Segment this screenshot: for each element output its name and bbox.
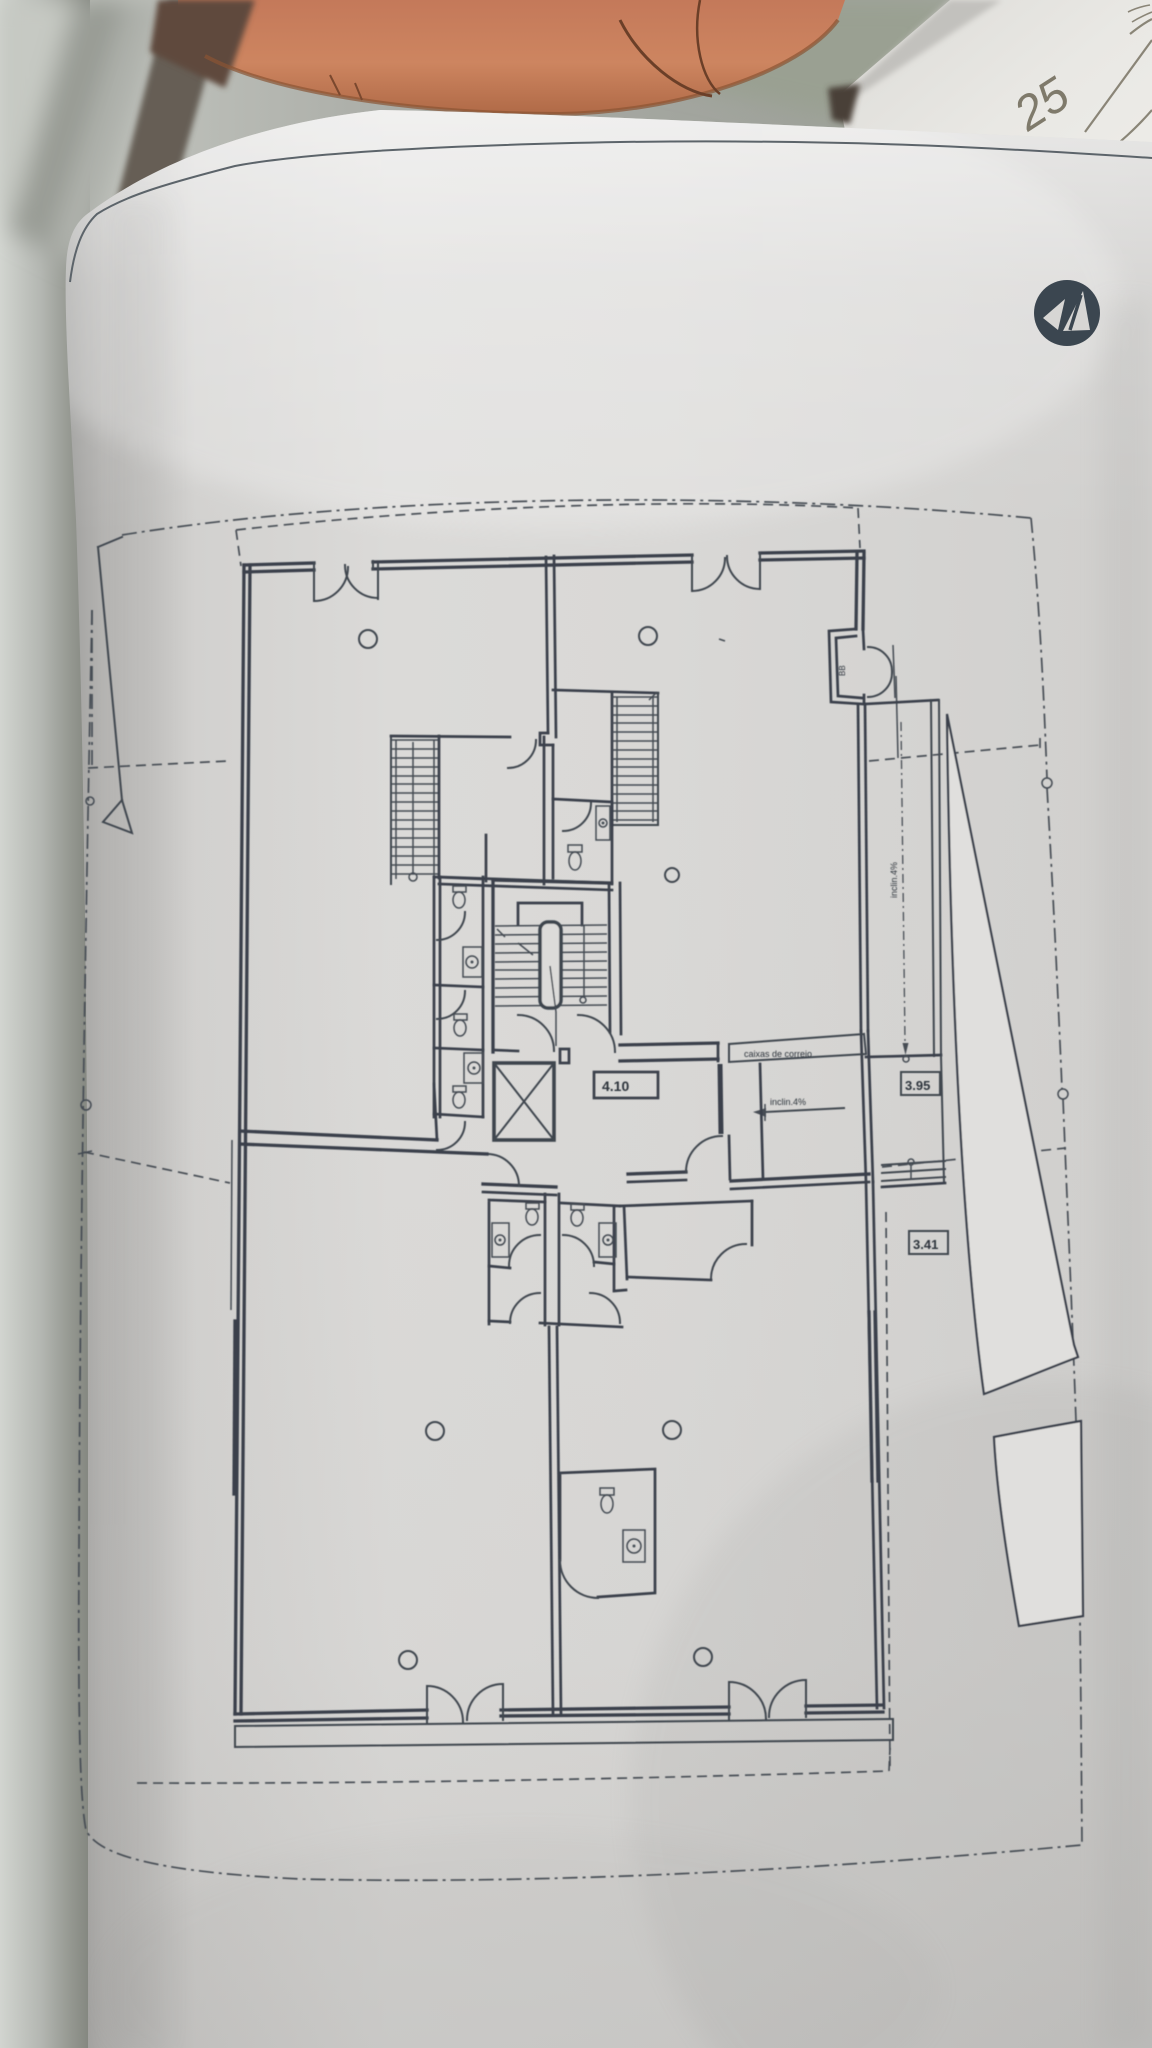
svg-text:inclin.4%: inclin.4% — [889, 862, 899, 898]
svg-text:BB: BB — [838, 665, 847, 676]
svg-text:3.95: 3.95 — [905, 1078, 930, 1093]
svg-text:3.41: 3.41 — [913, 1237, 938, 1252]
svg-text:inclin.4%: inclin.4% — [770, 1097, 806, 1107]
svg-text:4.10: 4.10 — [602, 1078, 629, 1094]
svg-text:caixas de correio: caixas de correio — [744, 1049, 812, 1059]
